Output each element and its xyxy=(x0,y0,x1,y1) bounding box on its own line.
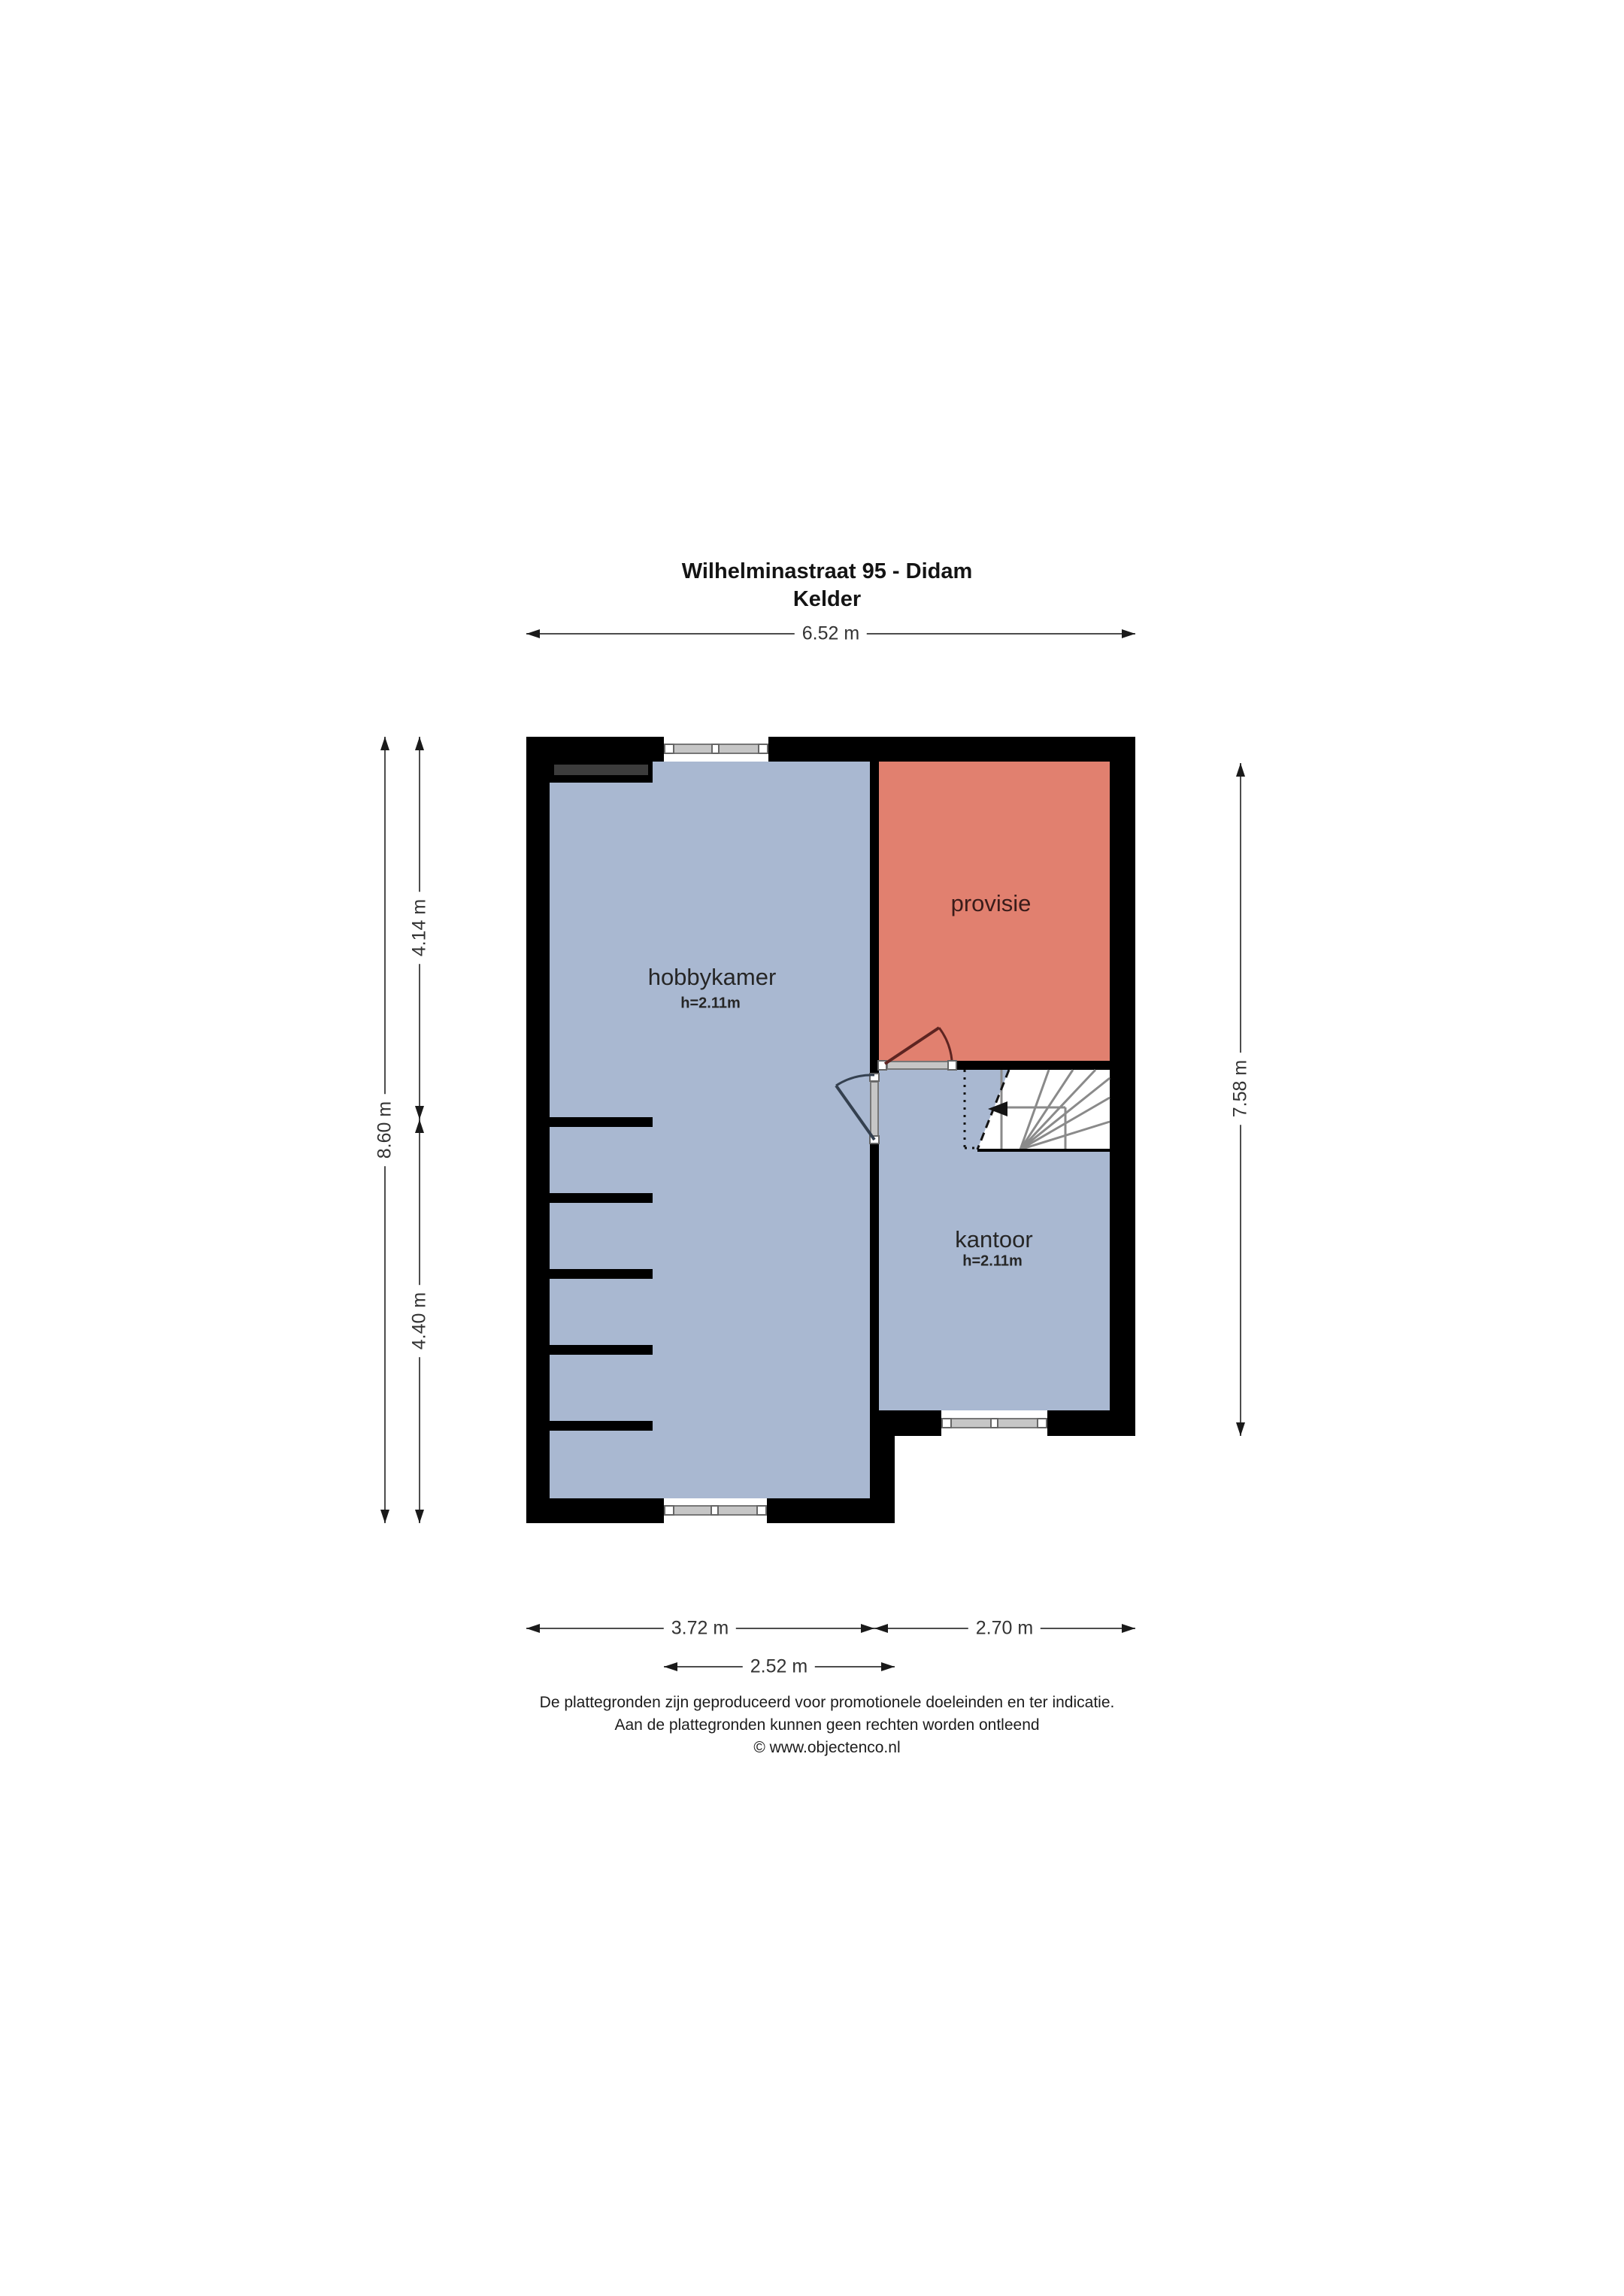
dimension-bottom-left: 3.72 m xyxy=(664,1617,736,1640)
disclaimer: De plattegronden zijn geproduceerd voor … xyxy=(540,1692,1115,1759)
plan-linework xyxy=(0,0,1624,2296)
dimension-left-lower: 4.40 m xyxy=(408,1285,432,1357)
ceiling-height-kantoor: h=2.11m xyxy=(962,1253,1023,1271)
dimension-bottom-inner: 2.52 m xyxy=(743,1655,815,1679)
dimension-top-width: 6.52 m xyxy=(795,622,867,646)
staircase xyxy=(965,1070,1110,1150)
disclaimer-line2: Aan de plattegronden kunnen geen rechten… xyxy=(540,1714,1115,1737)
dimension-arrowheads xyxy=(380,629,1245,1671)
dimension-right-height: 7.58 m xyxy=(1229,1053,1253,1125)
door-provisie-arc xyxy=(939,1028,952,1060)
dimension-left-upper: 4.14 m xyxy=(408,892,432,964)
floorplan-page: Wilhelminastraat 95 - Didam Kelder xyxy=(0,0,1624,2296)
room-label-provisie: provisie xyxy=(951,890,1032,917)
disclaimer-line1: De plattegronden zijn geproduceerd voor … xyxy=(540,1692,1115,1714)
door-provisie-leaf xyxy=(885,1028,939,1064)
door-swings xyxy=(836,1028,952,1140)
room-label-kantoor: kantoor xyxy=(955,1226,1032,1253)
room-label-hobbykamer: hobbykamer xyxy=(648,964,777,991)
dimension-lines xyxy=(385,634,1241,1667)
ceiling-height-hobbykamer: h=2.11m xyxy=(680,995,741,1013)
dimension-left-total: 8.60 m xyxy=(374,1094,397,1166)
door-hobby-leaf xyxy=(836,1086,874,1140)
disclaimer-line3: © www.objectenco.nl xyxy=(540,1737,1115,1759)
dimension-bottom-right: 2.70 m xyxy=(968,1617,1041,1640)
door-hobby-arc xyxy=(836,1075,874,1086)
